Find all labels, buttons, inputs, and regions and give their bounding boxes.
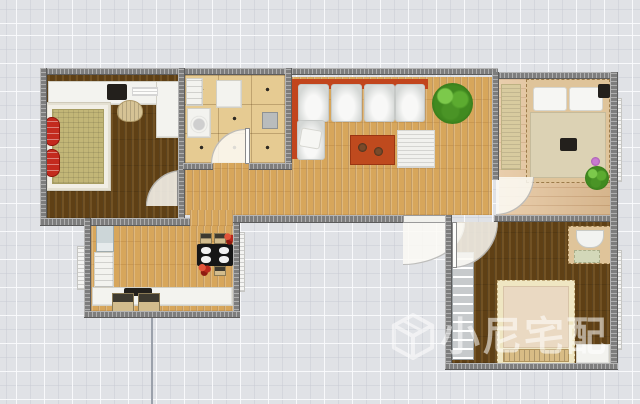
wall-kitchen-living: [285, 68, 292, 170]
door-leaf-bedroom2: [452, 222, 457, 268]
sofa-seat-4: [395, 84, 425, 122]
wall-hall-bottom: [233, 215, 403, 223]
wall-kitchen-bottom-right: [249, 163, 292, 170]
bedroom1-bed-mattress: [52, 109, 104, 184]
wall-top-bedroom3: [492, 72, 618, 79]
floor-plan-canvas: 小尼宅配: [0, 0, 640, 404]
sofa-seat-1: [298, 84, 329, 122]
kitchen-washer: [187, 108, 211, 138]
sofa-seat-2: [331, 84, 362, 122]
wall-top-main: [40, 68, 498, 75]
sofa-seat-3: [364, 84, 395, 122]
wall-dining-right: [233, 223, 240, 318]
bedroom3-pillow-left: [533, 87, 567, 111]
dining-cabinet: [94, 252, 114, 288]
brand-cube-icon: [390, 312, 436, 362]
wall-dining-left: [84, 218, 91, 318]
hall-floor: [185, 163, 292, 215]
plate-top-left: [201, 247, 211, 254]
kitchen-sink: [186, 78, 203, 106]
door-leaf-kitchen: [245, 128, 250, 164]
desk-paper: [132, 87, 158, 96]
plate-bottom-left: [201, 256, 211, 263]
grid-guide-line: [151, 318, 153, 404]
bedroom2-bed-mattress: [503, 286, 569, 348]
wall-bedroom1-kitchen: [178, 68, 185, 218]
sofa-pillow: [299, 127, 323, 149]
bedroom2-bed-bench: [503, 349, 569, 362]
dining-flowers-dark: [198, 264, 212, 276]
red-armchair-lower: [46, 149, 60, 177]
dining-chair-top-left: [200, 233, 212, 244]
wall-bedroom2-left: [445, 215, 452, 370]
bedroom3-plant: [585, 166, 609, 190]
dining-chair-bottom: [214, 266, 226, 276]
counter-stool-right: [138, 293, 160, 312]
entry-door-leaf: [403, 215, 449, 223]
wall-bedroom1-left: [40, 68, 47, 225]
bedroom2-wardrobe: [452, 252, 474, 360]
bedroom3-purple-flower: [591, 157, 600, 166]
plate-bottom-right: [219, 256, 229, 263]
wall-bedroom2-bottom: [445, 363, 618, 370]
dresser-pad: [574, 250, 600, 263]
wall-living-bedroom3: [492, 72, 499, 180]
wall-bedroom1-bottom: [40, 218, 190, 226]
bedroom3-nightstand: [598, 84, 610, 98]
counter-stool-left: [112, 293, 134, 312]
coffee-table-rug: [350, 135, 395, 165]
wall-bedroom2-right: [610, 215, 618, 370]
wall-kitchen-bottom-left: [183, 163, 213, 170]
dining-hall-connector-floor: [190, 210, 233, 226]
living-plant: [432, 83, 473, 124]
kitchen-small-appliance: [262, 112, 278, 129]
dining-fridge: [96, 224, 114, 252]
bedroom2-side-table: [576, 344, 610, 364]
bedroom3-item-on-bed: [560, 138, 577, 151]
living-floor-mat: [397, 130, 435, 168]
rug-decor-a: [358, 143, 367, 152]
desk-chair: [117, 100, 143, 122]
plate-top-right: [219, 247, 229, 254]
wall-bedroom2-top: [494, 215, 618, 222]
rug-decor-b: [374, 147, 383, 156]
wall-bedroom3-right: [610, 72, 618, 222]
kitchen-fridge: [216, 80, 242, 108]
red-armchair-upper: [46, 117, 60, 146]
wall-dining-bottom: [84, 311, 240, 318]
desktop-computer: [107, 84, 127, 100]
bedroom3-wardrobe: [501, 84, 521, 170]
